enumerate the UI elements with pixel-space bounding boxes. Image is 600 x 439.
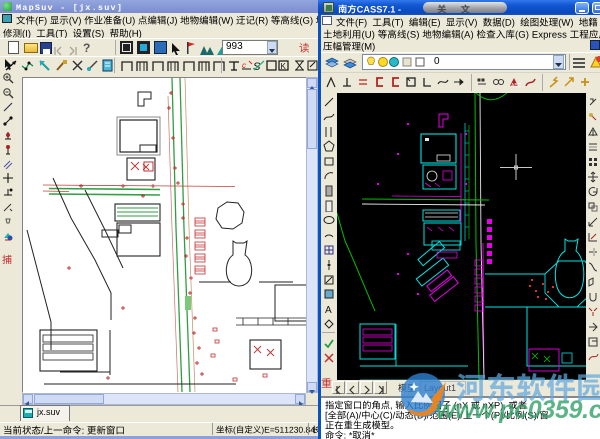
svg-text:ABC: ABC (511, 83, 521, 89)
svg-text:A: A (325, 305, 332, 315)
svg-text:c: c (242, 61, 246, 70)
svg-text:?: ? (83, 41, 90, 54)
svg-text:K: K (281, 62, 287, 71)
